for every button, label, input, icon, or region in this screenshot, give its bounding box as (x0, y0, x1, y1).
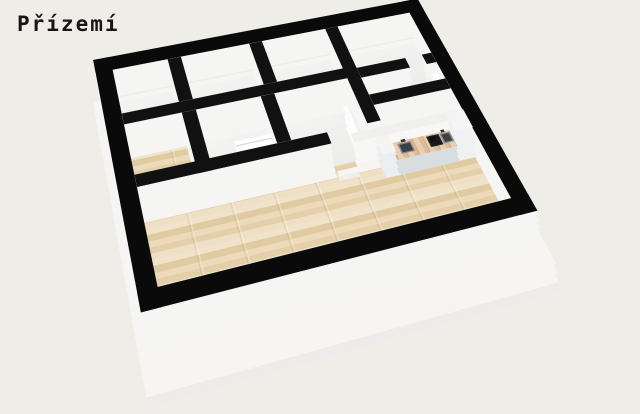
floor-title: Přízemí (17, 12, 120, 36)
floorplan-scene: Přízemí (0, 0, 640, 414)
floorplan-3d-render (98, 28, 543, 353)
